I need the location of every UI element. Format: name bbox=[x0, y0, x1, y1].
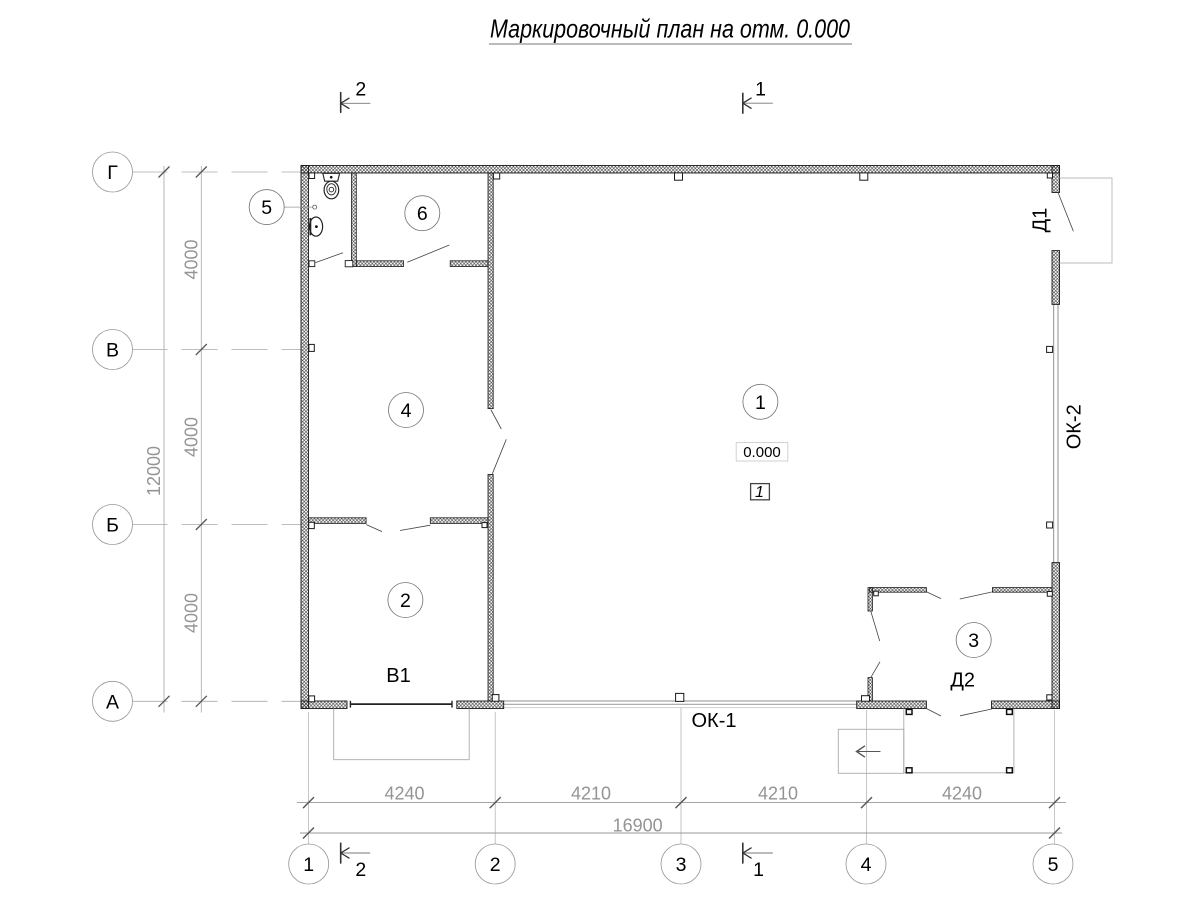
svg-text:4000: 4000 bbox=[182, 417, 202, 457]
svg-text:1: 1 bbox=[755, 78, 766, 100]
svg-text:4000: 4000 bbox=[182, 593, 202, 633]
svg-text:1: 1 bbox=[753, 859, 764, 881]
svg-text:4000: 4000 bbox=[182, 239, 202, 279]
svg-text:4: 4 bbox=[861, 854, 872, 876]
svg-text:ОК-1: ОК-1 bbox=[692, 710, 737, 732]
svg-text:4210: 4210 bbox=[571, 783, 611, 803]
svg-text:Маркировочный план на отм. 0.0: Маркировочный план на отм. 0.000 bbox=[490, 14, 850, 44]
svg-text:4240: 4240 bbox=[384, 783, 424, 803]
svg-text:12000: 12000 bbox=[144, 446, 164, 496]
svg-text:2: 2 bbox=[400, 590, 411, 612]
svg-text:В: В bbox=[106, 340, 119, 362]
svg-text:0.000: 0.000 bbox=[743, 444, 781, 461]
svg-text:Б: Б bbox=[106, 515, 119, 537]
svg-text:4240: 4240 bbox=[942, 783, 982, 803]
svg-text:А: А bbox=[106, 691, 119, 713]
svg-text:4210: 4210 bbox=[758, 783, 798, 803]
svg-text:4: 4 bbox=[401, 400, 412, 422]
svg-text:3: 3 bbox=[968, 630, 979, 652]
svg-text:1: 1 bbox=[303, 854, 314, 876]
svg-text:2: 2 bbox=[355, 78, 366, 100]
svg-text:16900: 16900 bbox=[613, 816, 663, 836]
svg-text:ОК-2: ОК-2 bbox=[1064, 404, 1086, 449]
svg-text:6: 6 bbox=[417, 203, 428, 225]
svg-text:1: 1 bbox=[755, 484, 764, 501]
svg-text:2: 2 bbox=[490, 854, 501, 876]
svg-text:3: 3 bbox=[676, 854, 687, 876]
svg-text:5: 5 bbox=[261, 197, 272, 219]
svg-text:Г: Г bbox=[107, 162, 118, 184]
svg-text:2: 2 bbox=[355, 859, 366, 881]
svg-text:Д2: Д2 bbox=[950, 670, 975, 692]
svg-text:5: 5 bbox=[1048, 854, 1059, 876]
svg-text:В1: В1 bbox=[386, 665, 410, 687]
svg-text:1: 1 bbox=[755, 392, 766, 414]
svg-text:Д1: Д1 bbox=[1030, 208, 1052, 233]
